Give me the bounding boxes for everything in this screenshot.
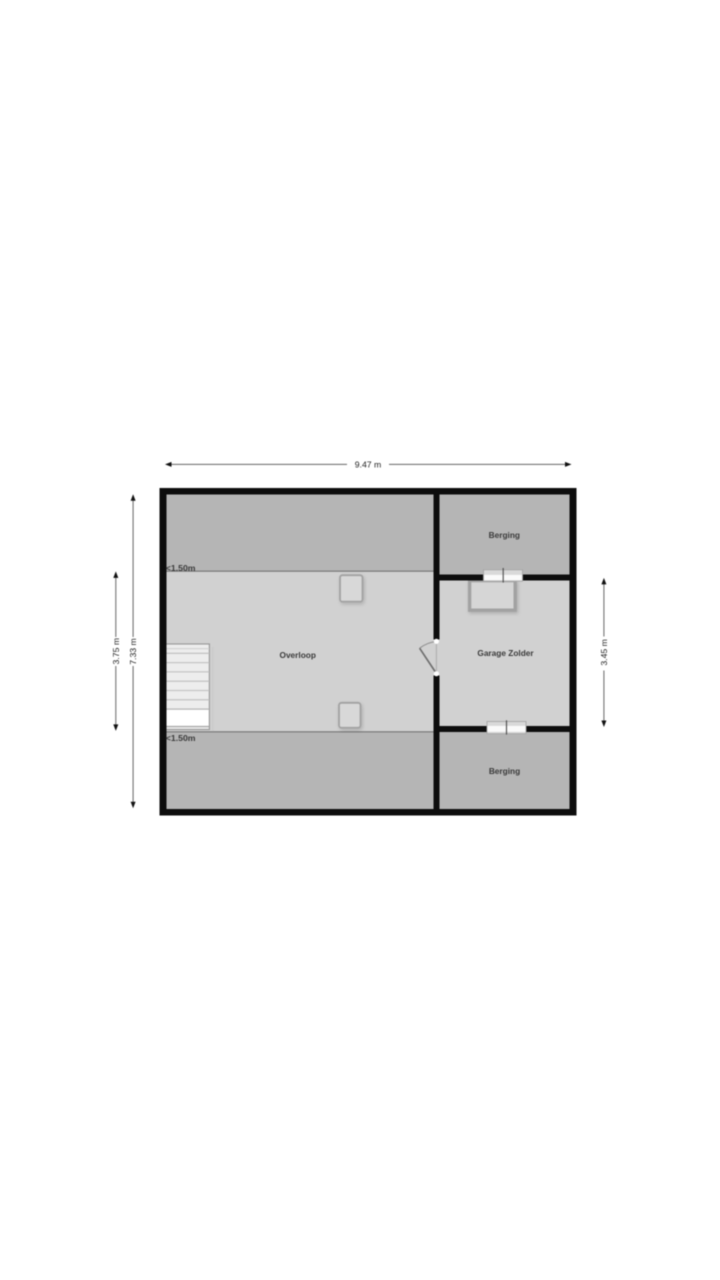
svg-text:3.75 m: 3.75 m: [111, 638, 121, 665]
svg-text:Berging: Berging: [489, 766, 520, 776]
svg-text:7.33 m: 7.33 m: [128, 638, 138, 665]
svg-text:Berging: Berging: [489, 530, 520, 540]
svg-text:3.45 m: 3.45 m: [599, 639, 609, 666]
svg-text:Overloop: Overloop: [279, 650, 315, 660]
svg-text:<1.50m: <1.50m: [166, 733, 196, 743]
svg-text:<1.50m: <1.50m: [166, 563, 196, 573]
svg-text:Garage Zolder: Garage Zolder: [477, 648, 534, 658]
svg-text:9.47 m: 9.47 m: [355, 459, 382, 469]
